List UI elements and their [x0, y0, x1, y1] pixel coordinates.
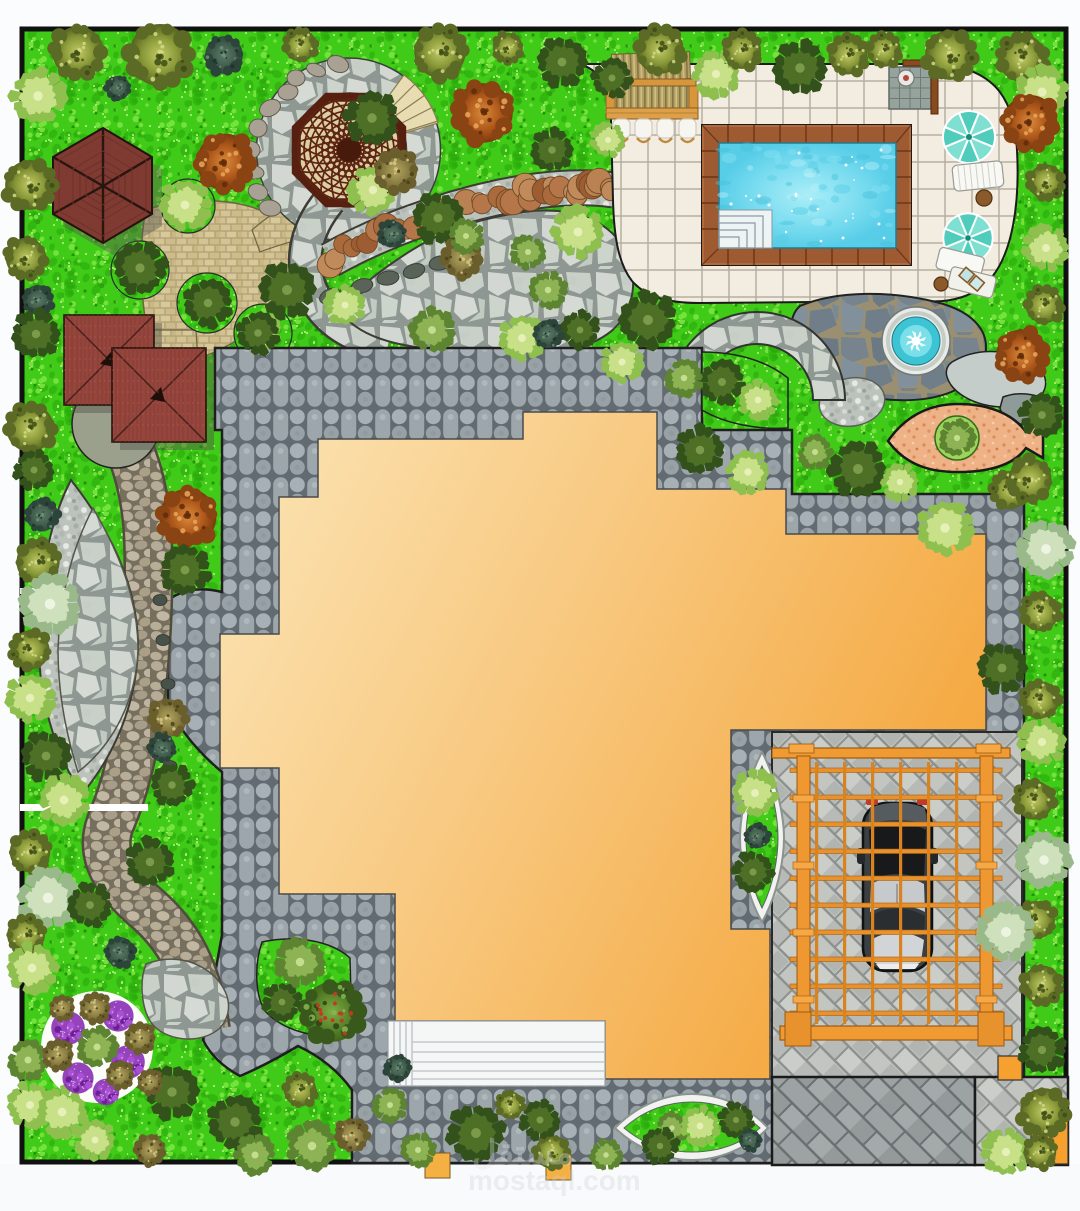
svg-text:مستقل: مستقل	[472, 1134, 574, 1172]
